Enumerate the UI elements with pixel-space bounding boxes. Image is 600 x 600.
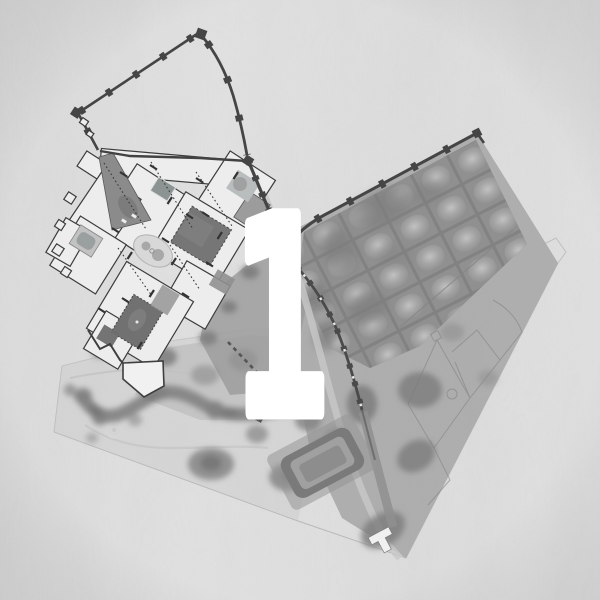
site-plan: 1	[0, 0, 600, 600]
numeral-text: 1	[232, 162, 330, 478]
site-plan-page: 1	[0, 0, 600, 600]
numeral-overlay: 1	[232, 162, 330, 478]
